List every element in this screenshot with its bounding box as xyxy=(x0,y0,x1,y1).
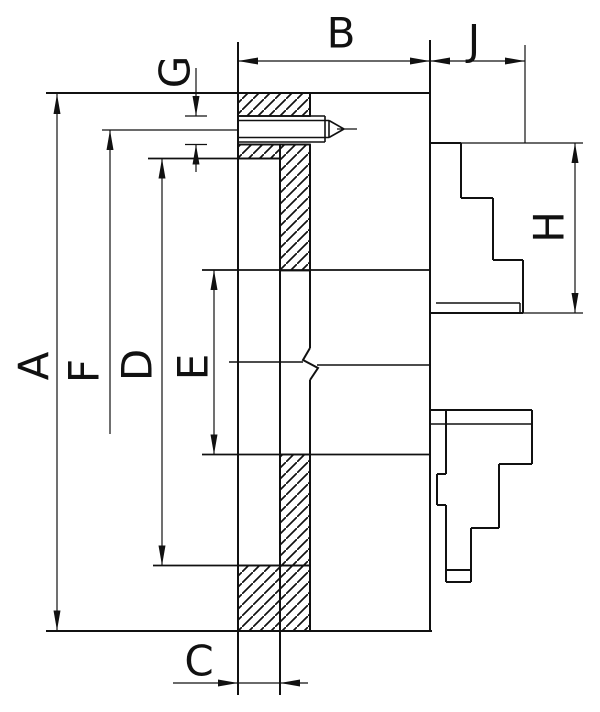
dim-label-d: D xyxy=(113,349,162,381)
arrow-c-left xyxy=(218,680,238,687)
top-jaw xyxy=(430,143,523,313)
arrow-g-bottom xyxy=(193,145,200,165)
arrow-e-top xyxy=(211,270,218,290)
mounting-stud xyxy=(238,116,357,142)
arrow-a-top xyxy=(54,94,61,114)
dim-label-f: F xyxy=(60,359,109,383)
arrow-b-left xyxy=(238,58,258,65)
dim-label-b: B xyxy=(327,9,356,58)
chuck-drawing-page: A F D E G H B J C xyxy=(0,0,600,712)
arrow-h-bottom xyxy=(572,293,579,313)
centerline xyxy=(229,362,430,365)
hatch-top-boss xyxy=(280,145,310,271)
hatch-top-rim xyxy=(238,93,310,116)
arrow-g-top xyxy=(193,96,200,116)
bottom-jaw xyxy=(430,410,532,582)
dim-label-c: C xyxy=(184,637,213,686)
dim-label-e: E xyxy=(169,354,218,381)
dim-label-j: J xyxy=(465,16,480,65)
arrow-b-right xyxy=(410,58,430,65)
arrow-j-left xyxy=(430,58,450,65)
arrow-c-right xyxy=(280,680,300,687)
arrow-d-top xyxy=(159,159,166,179)
chuck-technical-drawing: A F D E G H B J C xyxy=(0,0,600,712)
arrow-j-right xyxy=(505,58,525,65)
dim-label-a: A xyxy=(10,351,59,380)
arrow-e-bottom xyxy=(211,435,218,455)
dim-label-h: H xyxy=(525,211,574,243)
hatch-top-strip xyxy=(238,145,280,159)
hatch-bottom-boss xyxy=(280,455,310,566)
arrow-h-top xyxy=(572,143,579,163)
break-zigzag xyxy=(303,348,318,380)
stud-tip-upper xyxy=(329,121,344,130)
dim-label-g: G xyxy=(151,56,200,89)
arrow-f-top xyxy=(107,130,114,150)
stud-tip-lower xyxy=(329,129,344,138)
arrow-d-bottom xyxy=(159,546,166,566)
hatch-bottom-rim xyxy=(238,566,310,632)
arrow-a-bottom xyxy=(54,611,61,631)
